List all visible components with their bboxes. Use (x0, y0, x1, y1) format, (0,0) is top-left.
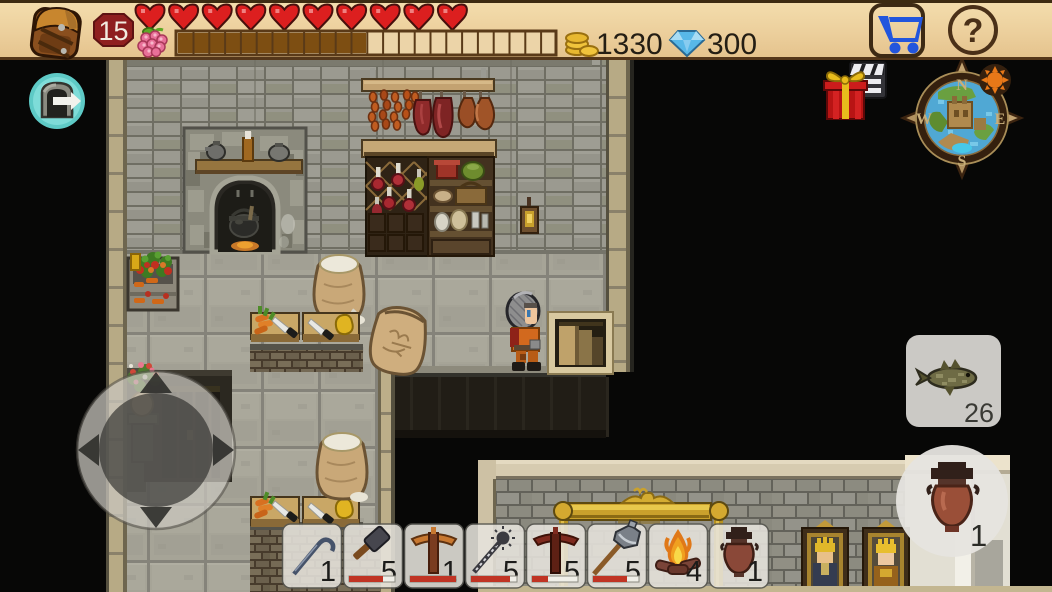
svg-text:N: N (956, 77, 968, 94)
svg-text:5: 5 (503, 556, 519, 588)
svg-text:?: ? (963, 12, 984, 50)
svg-text:4: 4 (686, 556, 702, 588)
svg-text:5: 5 (625, 556, 641, 588)
svg-text:1: 1 (320, 556, 336, 588)
svg-text:5: 5 (564, 556, 580, 588)
svg-text:1: 1 (747, 556, 763, 588)
svg-text:5: 5 (381, 556, 397, 588)
svg-text:15: 15 (98, 16, 128, 46)
svg-text:S: S (958, 153, 967, 170)
svg-text:300: 300 (707, 28, 757, 61)
svg-text:1330: 1330 (596, 28, 663, 61)
svg-text:W: W (916, 111, 932, 128)
svg-text:1: 1 (442, 556, 458, 588)
svg-text:E: E (995, 111, 1006, 128)
svg-text:26: 26 (964, 398, 994, 428)
svg-text:1: 1 (970, 518, 987, 553)
